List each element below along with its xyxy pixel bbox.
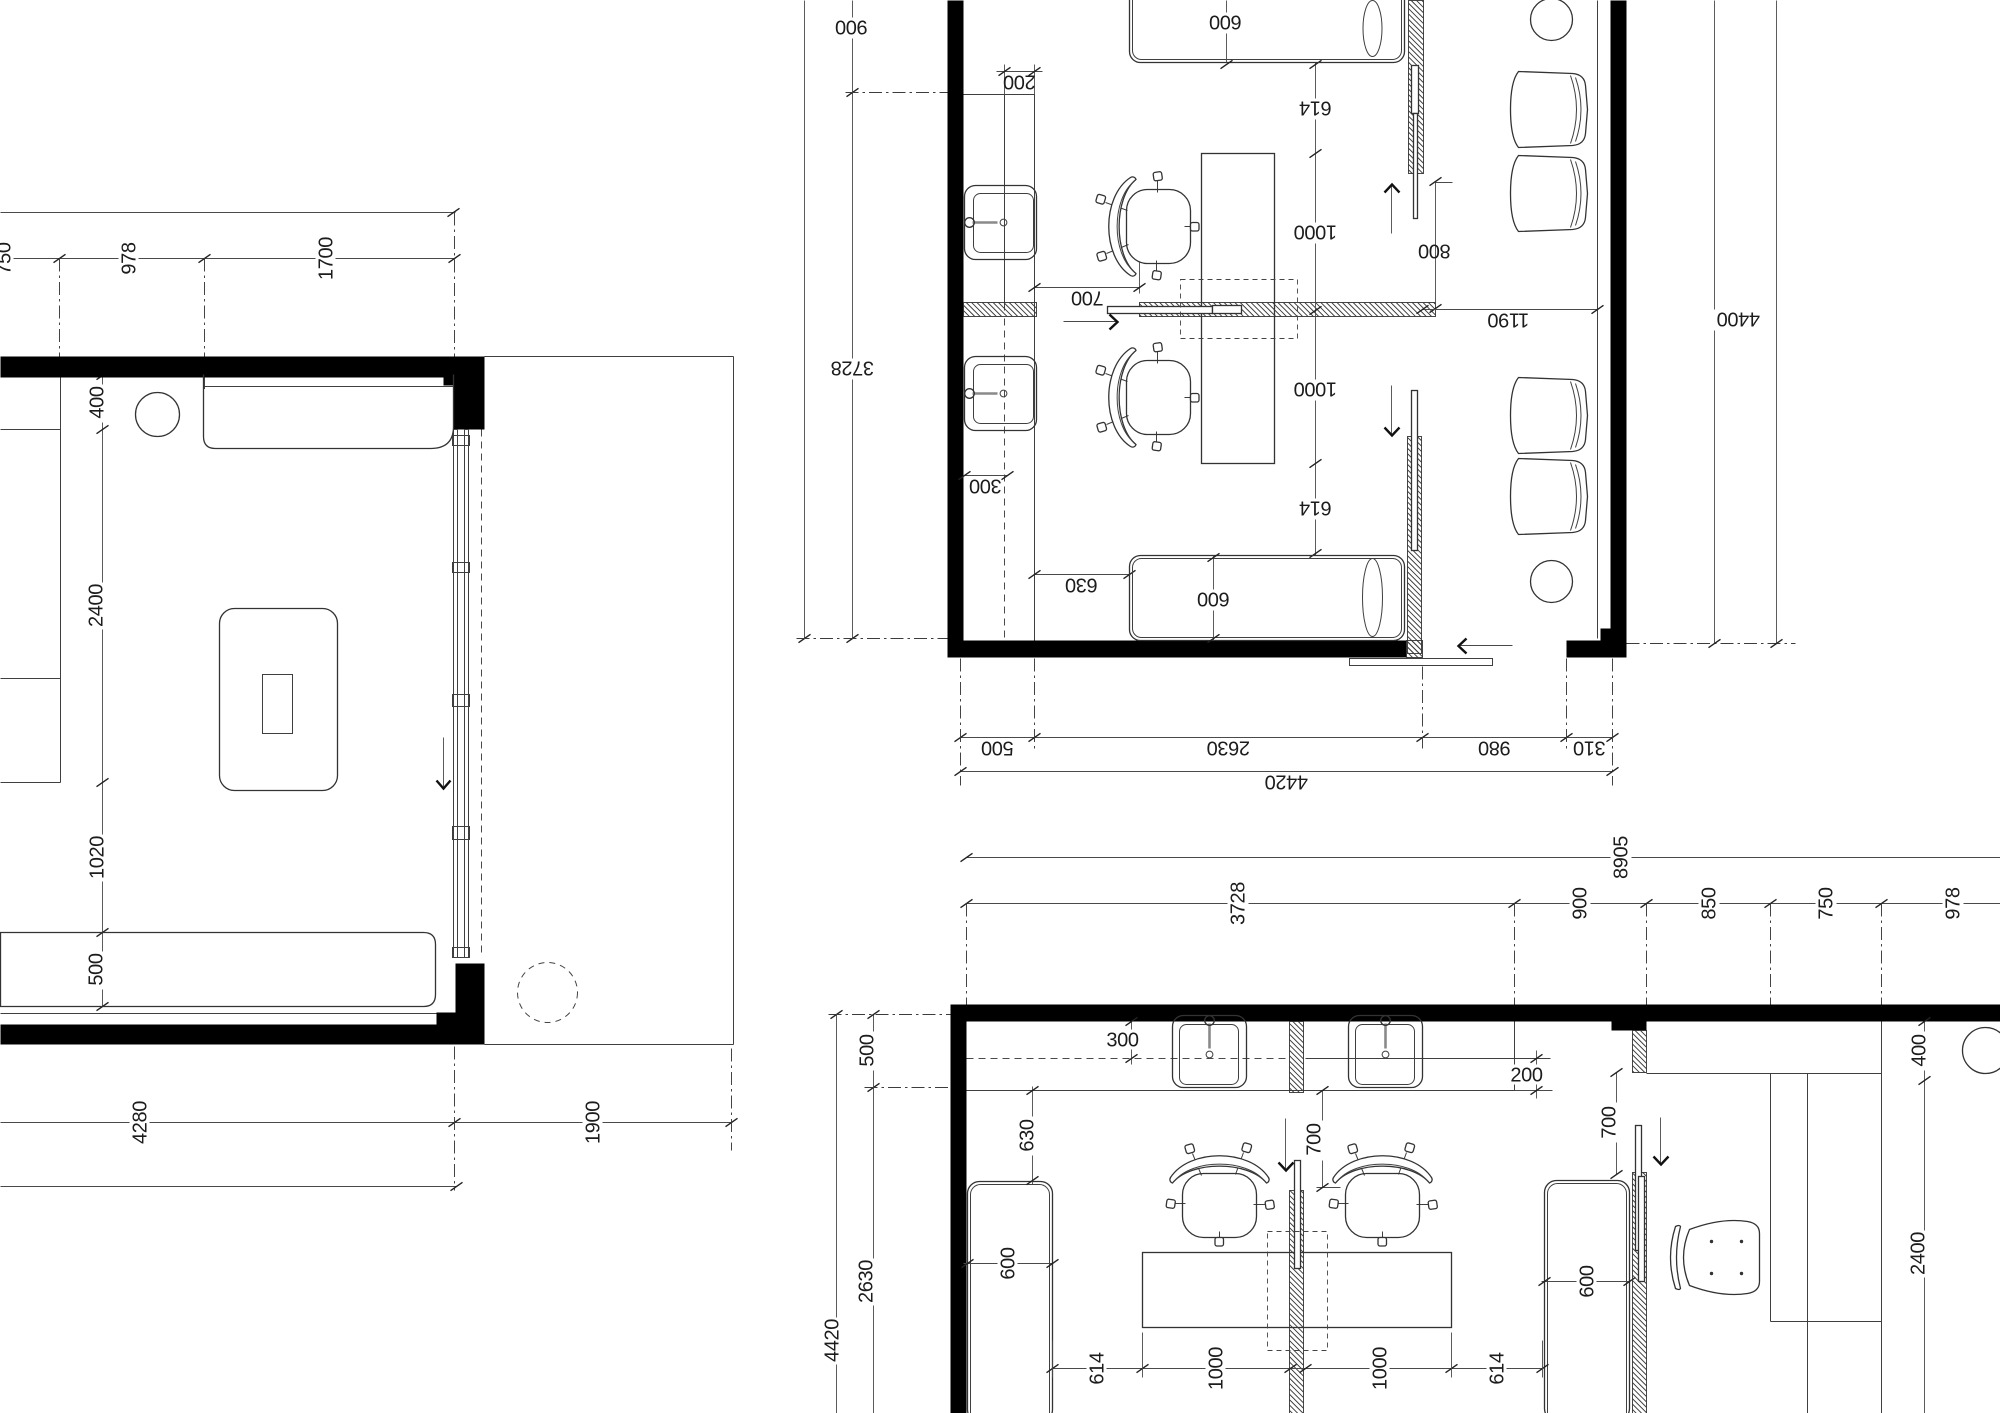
svg-text:2400: 2400: [1908, 1232, 1930, 1275]
svg-text:200: 200: [1510, 1065, 1542, 1087]
svg-text:614: 614: [1487, 1352, 1509, 1384]
svg-text:614: 614: [1087, 1352, 1109, 1384]
svg-text:3728: 3728: [831, 357, 874, 379]
svg-text:1000: 1000: [1370, 1347, 1392, 1390]
svg-text:310: 310: [1573, 737, 1605, 759]
svg-text:614: 614: [1299, 97, 1331, 119]
svg-text:850: 850: [1699, 887, 1721, 919]
svg-text:1900: 1900: [583, 1101, 605, 1144]
svg-text:8905: 8905: [1611, 836, 1633, 879]
svg-text:900: 900: [1570, 887, 1592, 919]
svg-text:700: 700: [1599, 1106, 1621, 1138]
svg-text:600: 600: [1209, 11, 1241, 33]
svg-text:600: 600: [1577, 1265, 1599, 1297]
svg-text:600: 600: [998, 1247, 1020, 1279]
svg-text:978: 978: [1943, 887, 1965, 919]
svg-text:800: 800: [1418, 240, 1450, 262]
svg-text:300: 300: [1106, 1030, 1138, 1052]
svg-text:3728: 3728: [1228, 882, 1250, 925]
svg-text:4420: 4420: [822, 1319, 844, 1362]
svg-text:978: 978: [119, 242, 141, 274]
svg-text:980: 980: [1478, 737, 1510, 759]
svg-text:700: 700: [1071, 287, 1103, 309]
svg-text:900: 900: [835, 16, 867, 38]
svg-text:2630: 2630: [856, 1260, 878, 1303]
svg-text:750: 750: [0, 242, 16, 274]
svg-text:500: 500: [981, 737, 1013, 759]
svg-text:1000: 1000: [1294, 221, 1337, 243]
svg-text:500: 500: [86, 953, 108, 985]
svg-text:1700: 1700: [316, 237, 338, 280]
svg-text:630: 630: [1017, 1119, 1039, 1151]
svg-text:1020: 1020: [87, 836, 109, 879]
svg-text:700: 700: [1304, 1123, 1326, 1155]
svg-text:4420: 4420: [1265, 771, 1308, 793]
svg-text:1000: 1000: [1206, 1347, 1228, 1390]
svg-text:630: 630: [1065, 574, 1097, 596]
svg-text:400: 400: [1909, 1034, 1931, 1066]
svg-text:750: 750: [1816, 887, 1838, 919]
svg-text:600: 600: [1197, 588, 1229, 610]
svg-text:300: 300: [969, 475, 1001, 497]
svg-text:1000: 1000: [1294, 378, 1337, 400]
svg-text:4400: 4400: [1717, 308, 1760, 330]
svg-text:614: 614: [1299, 497, 1331, 519]
svg-text:500: 500: [857, 1034, 879, 1066]
svg-text:4280: 4280: [130, 1101, 152, 1144]
svg-text:200: 200: [1003, 71, 1035, 93]
svg-text:1190: 1190: [1488, 309, 1530, 331]
svg-text:2400: 2400: [86, 584, 108, 627]
svg-text:400: 400: [87, 386, 109, 418]
svg-text:2630: 2630: [1207, 737, 1250, 759]
